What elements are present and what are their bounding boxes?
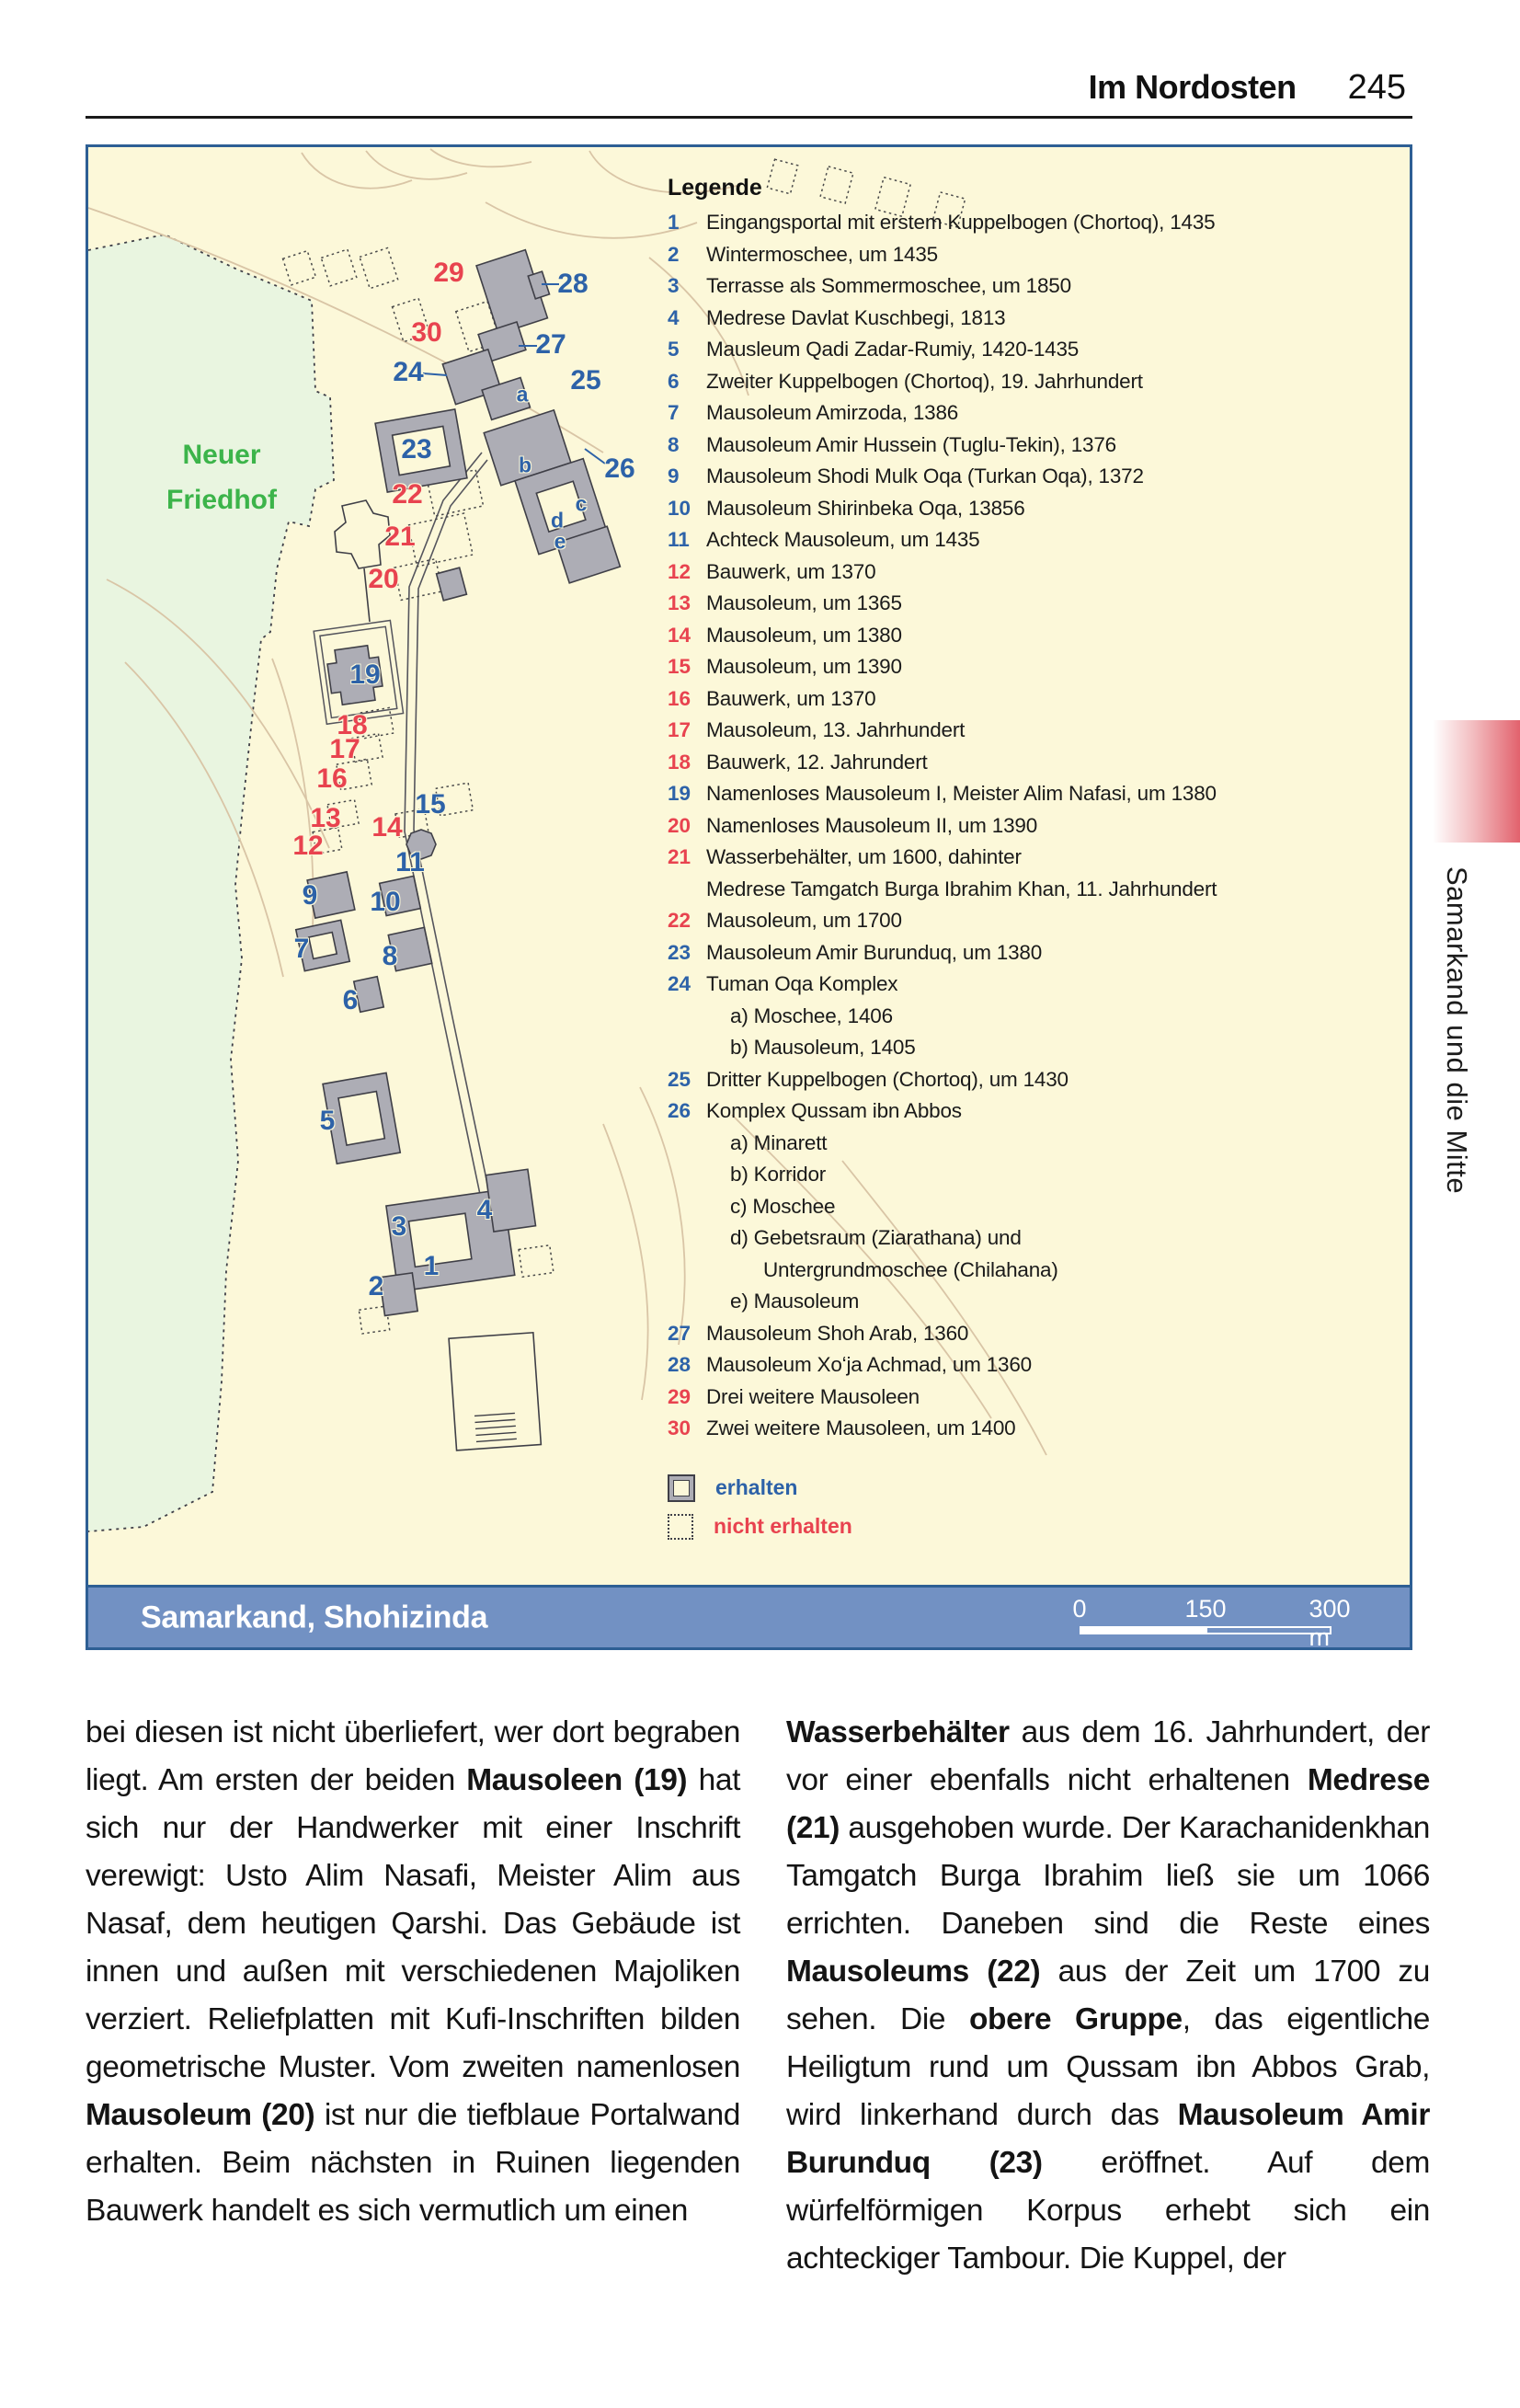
map-label-b: b (519, 453, 531, 478)
map-label-12: 12 (292, 831, 323, 862)
legend-item: 22Mausoleum, um 1700 (668, 905, 1403, 937)
legend-item: 23Mausoleum Amir Burunduq, um 1380 (668, 937, 1403, 969)
legend-item: 3Terrasse als Sommermoschee, um 1850 (668, 270, 1403, 303)
legend-item: 7Mausoleum Amirzoda, 1386 (668, 397, 1403, 430)
map-label-19: 19 (349, 659, 380, 691)
legend-item: 13Mausoleum, um 1365 (668, 588, 1403, 620)
scale-mid: 150 (1184, 1595, 1226, 1623)
legend-item: 30Zwei weitere Mausoleen, um 1400 (668, 1413, 1403, 1445)
preserved-label: erhalten (715, 1475, 797, 1500)
map-area: Neuer Friedhof 292830272425a23b2622cde21… (88, 147, 1410, 1585)
cemetery-label-line1: Neuer (143, 432, 300, 477)
legend-item: 17Mausoleum, 13. Jahrhundert (668, 715, 1403, 747)
map-label-21: 21 (384, 522, 415, 553)
legend-item: 20Namenloses Mausoleum II, um 1390 (668, 810, 1403, 843)
legend-item: 8Mausoleum Amir Hussein (Tuglu-Tekin), 1… (668, 430, 1403, 462)
map-label-14: 14 (371, 812, 402, 843)
map-label-17: 17 (329, 734, 360, 765)
legend-symbol-preserved: erhalten (668, 1469, 1403, 1508)
scalebar-outline-segment (1206, 1626, 1331, 1634)
map-label-2: 2 (369, 1271, 384, 1302)
section-title: Im Nordosten (1089, 68, 1297, 107)
legend-item: b) Korridor (668, 1159, 1403, 1191)
legend-item: 27Mausoleum Shoh Arab, 1360 (668, 1318, 1403, 1350)
map-panel: Neuer Friedhof 292830272425a23b2622cde21… (86, 144, 1412, 1650)
legend-item: 2Wintermoschee, um 1435 (668, 239, 1403, 271)
map-label-20: 20 (368, 564, 398, 595)
legend-item: 25Dritter Kuppelbogen (Chortoq), um 1430 (668, 1064, 1403, 1096)
legend-rows: 1Eingangsportal mit erstem Kuppelbogen (… (668, 207, 1403, 1445)
article-right-column: Wasserbehälter aus dem 16. Jahrhundert, … (786, 1709, 1430, 2283)
map-label-24: 24 (393, 357, 423, 388)
legend-item: 1Eingangsportal mit erstem Kuppelbogen (… (668, 207, 1403, 239)
map-label-7: 7 (294, 934, 310, 965)
map-label-8: 8 (383, 941, 398, 972)
legend-item: 21Wasserbehälter, um 1600, dahinter (668, 842, 1403, 874)
scalebar-solid-segment (1080, 1626, 1206, 1634)
terrace-structure (449, 1333, 541, 1451)
map-label-10: 10 (370, 887, 400, 918)
not-preserved-square-icon (668, 1514, 693, 1540)
map-label-9: 9 (303, 880, 318, 912)
legend-item: a) Minarett (668, 1128, 1403, 1160)
legend-item: 24Tuman Oqa Komplex (668, 969, 1403, 1001)
cemetery-label: Neuer Friedhof (143, 432, 300, 522)
legend-item: 10Mausoleum Shirinbeka Oqa, 13856 (668, 493, 1403, 525)
map-label-23: 23 (401, 434, 431, 465)
legend-item: 14Mausoleum, um 1380 (668, 620, 1403, 652)
legend-item: 28Mausoleum Xoʻja Achmad, um 1360 (668, 1349, 1403, 1382)
header-rule (86, 116, 1412, 119)
map-label-e: e (554, 530, 566, 555)
legend-item: c) Moschee (668, 1191, 1403, 1223)
map-label-29: 29 (433, 258, 463, 289)
legend-item: 11Achteck Mausoleum, um 1435 (668, 524, 1403, 556)
chapter-tab-marker (1433, 720, 1520, 843)
map-label-27: 27 (535, 329, 566, 361)
map-label-11: 11 (395, 847, 425, 878)
page-header: Im Nordosten 245 (1089, 68, 1406, 108)
legend-symbol-not-preserved: nicht erhalten (668, 1508, 1403, 1546)
legend-item: d) Gebetsraum (Ziarathana) und (668, 1222, 1403, 1255)
map-label-16: 16 (316, 763, 347, 795)
map-legend: Legende 1Eingangsportal mit erstem Kuppe… (668, 175, 1403, 1546)
not-preserved-label: nicht erhalten (714, 1514, 852, 1539)
legend-item: 4Medrese Davlat Kuschbegi, 1813 (668, 303, 1403, 335)
map-label-13: 13 (310, 803, 340, 834)
map-label-6: 6 (343, 985, 359, 1016)
legend-item: 18Bauwerk, 12. Jahrundert (668, 747, 1403, 779)
map-label-3: 3 (392, 1211, 407, 1243)
map-label-26: 26 (604, 453, 634, 485)
legend-item: 6Zweiter Kuppelbogen (Chortoq), 19. Jahr… (668, 366, 1403, 398)
map-label-25: 25 (570, 365, 600, 396)
chapter-tab-label: Samarkand und die Mitte (1440, 866, 1473, 1455)
legend-item: 29Drei weitere Mausoleen (668, 1382, 1403, 1414)
map-label-30: 30 (411, 317, 441, 349)
legend-item: 19Namenloses Mausoleum I, Meister Alim N… (668, 778, 1403, 810)
map-titlebar: Samarkand, Shohizinda 0 150 300 m (88, 1585, 1410, 1647)
map-title: Samarkand, Shohizinda (141, 1600, 487, 1635)
legend-item: Medrese Tamgatch Burga Ibrahim Khan, 11.… (668, 874, 1403, 906)
map-label-15: 15 (415, 789, 445, 820)
map-label-5: 5 (320, 1106, 336, 1137)
map-label-c: c (576, 492, 588, 517)
legend-item: b) Mausoleum, 1405 (668, 1032, 1403, 1064)
legend-item: e) Mausoleum (668, 1286, 1403, 1318)
legend-item: 26Komplex Qussam ibn Abbos (668, 1095, 1403, 1128)
legend-item: 9Mausoleum Shodi Mulk Oqa (Turkan Oqa), … (668, 461, 1403, 493)
legend-item: 15Mausoleum, um 1390 (668, 651, 1403, 683)
legend-item: Untergrundmoschee (Chilahana) (668, 1255, 1403, 1287)
legend-item: 12Bauwerk, um 1370 (668, 556, 1403, 589)
page-number: 245 (1348, 68, 1406, 108)
legend-item: 5Mausleum Qadi Zadar-Rumiy, 1420-1435 (668, 334, 1403, 366)
legend-title: Legende (668, 175, 1403, 201)
map-label-22: 22 (392, 479, 422, 510)
preserved-square-icon (668, 1474, 695, 1502)
legend-item: a) Moschee, 1406 (668, 1001, 1403, 1033)
cemetery-label-line2: Friedhof (143, 477, 300, 522)
map-label-1: 1 (424, 1251, 440, 1282)
map-label-28: 28 (557, 269, 588, 300)
map-label-a: a (517, 383, 529, 407)
map-label-4: 4 (477, 1195, 493, 1226)
article-left-column: bei diesen ist nicht überliefert, wer do… (86, 1709, 740, 2235)
legend-symbols: erhalten nicht erhalten (668, 1469, 1403, 1546)
scale-start: 0 (1072, 1595, 1086, 1623)
legend-item: 16Bauwerk, um 1370 (668, 683, 1403, 716)
scale-end: 300 m (1309, 1595, 1377, 1652)
book-page: Im Nordosten 245 (0, 0, 1520, 2408)
